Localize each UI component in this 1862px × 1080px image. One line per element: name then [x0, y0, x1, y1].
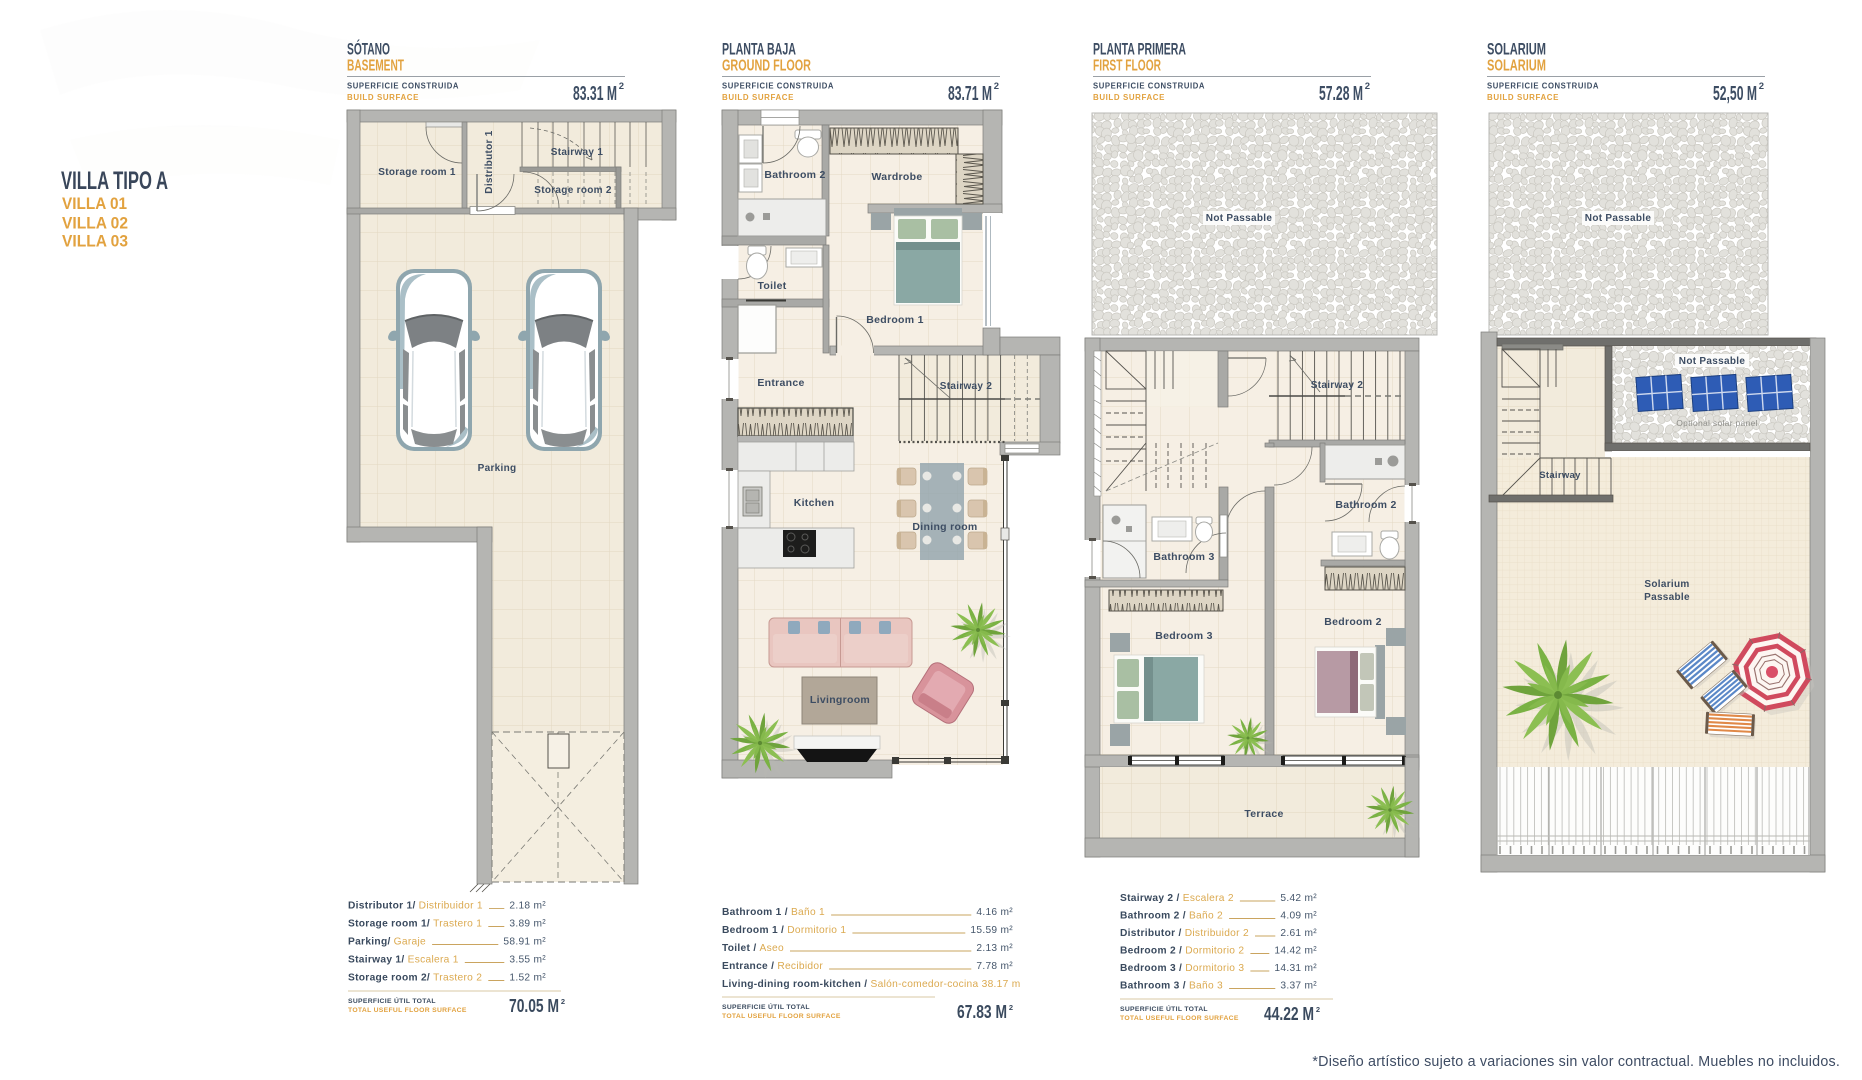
- svg-text:Storage room 2/: Storage room 2/: [348, 973, 430, 984]
- svg-text:Entrance: Entrance: [757, 377, 804, 389]
- svg-text:BUILD SURFACE: BUILD SURFACE: [1487, 93, 1559, 102]
- svg-text:SUPERFICIE CONSTRUIDA: SUPERFICIE CONSTRUIDA: [1093, 82, 1205, 91]
- svg-text:Bathroom 1 /: Bathroom 1 /: [722, 907, 788, 918]
- svg-text:15.59 m²: 15.59 m²: [970, 925, 1013, 936]
- svg-text:2: 2: [1009, 1003, 1013, 1012]
- svg-text:67.83 M: 67.83 M: [957, 1002, 1007, 1022]
- svg-text:Bedroom 2: Bedroom 2: [1324, 616, 1382, 628]
- svg-text:Storage room 1: Storage room 1: [378, 167, 456, 178]
- svg-text:BUILD SURFACE: BUILD SURFACE: [722, 93, 794, 102]
- svg-text:Escalera 2: Escalera 2: [1183, 893, 1234, 904]
- svg-text:Bedroom 3 /: Bedroom 3 /: [1120, 963, 1182, 974]
- svg-text:SUPERFICIE CONSTRUIDA: SUPERFICIE CONSTRUIDA: [347, 82, 459, 91]
- svg-text:58.91 m²: 58.91 m²: [503, 937, 546, 948]
- svg-text:Bedroom 1: Bedroom 1: [866, 314, 924, 326]
- svg-text:SÓTANO: SÓTANO: [347, 40, 390, 59]
- svg-text:Parking/: Parking/: [348, 937, 391, 948]
- svg-text:Solarium: Solarium: [1644, 579, 1689, 590]
- svg-text:Stairway: Stairway: [1539, 470, 1581, 481]
- svg-text:Bedroom 3: Bedroom 3: [1155, 630, 1213, 642]
- svg-text:Garaje: Garaje: [394, 937, 426, 948]
- svg-text:Baño 2: Baño 2: [1189, 911, 1223, 922]
- svg-text:Baño 1: Baño 1: [791, 907, 825, 918]
- svg-text:PLANTA PRIMERA: PLANTA PRIMERA: [1093, 40, 1186, 59]
- svg-text:Wardrobe: Wardrobe: [871, 171, 922, 183]
- svg-text:3.55 m²: 3.55 m²: [509, 955, 546, 966]
- svg-text:SUPERFICIE CONSTRUIDA: SUPERFICIE CONSTRUIDA: [1487, 82, 1599, 91]
- svg-text:VILLA 03: VILLA 03: [62, 233, 128, 251]
- svg-text:VILLA 02: VILLA 02: [62, 215, 128, 233]
- svg-text:SOLARIUM: SOLARIUM: [1487, 58, 1546, 75]
- svg-text:2.61 m²: 2.61 m²: [1280, 928, 1317, 939]
- svg-text:Optional solar panel: Optional solar panel: [1676, 418, 1758, 428]
- svg-text:Toilet /: Toilet /: [722, 943, 756, 954]
- svg-text:Trastero 1: Trastero 1: [433, 919, 482, 930]
- svg-text:Bathroom 2: Bathroom 2: [764, 169, 825, 181]
- svg-text:Not Passable: Not Passable: [1206, 213, 1273, 224]
- svg-text:Dormitorio 1: Dormitorio 1: [787, 925, 846, 936]
- svg-text:Passable: Passable: [1644, 592, 1690, 603]
- svg-text:TOTAL USEFUL FLOOR SURFACE: TOTAL USEFUL FLOOR SURFACE: [1120, 1015, 1239, 1022]
- svg-text:BASEMENT: BASEMENT: [347, 58, 404, 75]
- svg-text:Distributor 1: Distributor 1: [484, 130, 495, 193]
- svg-text:Storage room 1/: Storage room 1/: [348, 919, 430, 930]
- svg-text:Bedroom 1 /: Bedroom 1 /: [722, 925, 784, 936]
- svg-text:4.09 m²: 4.09 m²: [1280, 911, 1317, 922]
- svg-text:SUPERFICIE ÚTIL TOTAL: SUPERFICIE ÚTIL TOTAL: [722, 1002, 810, 1011]
- svg-text:52,50 M: 52,50 M: [1713, 82, 1757, 105]
- svg-text:BUILD SURFACE: BUILD SURFACE: [347, 93, 419, 102]
- svg-text:2.18 m²: 2.18 m²: [509, 901, 546, 912]
- svg-text:44.22 M: 44.22 M: [1264, 1004, 1314, 1024]
- svg-text:Stairway 1: Stairway 1: [551, 147, 604, 158]
- svg-text:2: 2: [1316, 1005, 1320, 1014]
- svg-text:Distribuidor 2: Distribuidor 2: [1185, 928, 1249, 939]
- svg-text:1.52 m²: 1.52 m²: [509, 973, 546, 984]
- svg-text:Living-dining room-kitchen /: Living-dining room-kitchen /: [722, 979, 867, 990]
- svg-text:57.28 M: 57.28 M: [1319, 82, 1363, 105]
- svg-text:VILLA 01: VILLA 01: [62, 195, 127, 213]
- svg-text:2: 2: [1365, 81, 1370, 92]
- svg-text:VILLA TIPO A: VILLA TIPO A: [61, 167, 168, 195]
- svg-text:4.16 m²: 4.16 m²: [976, 907, 1013, 918]
- svg-text:Storage room 2: Storage room 2: [534, 185, 612, 196]
- svg-text:Escalera 1: Escalera 1: [408, 955, 459, 966]
- svg-text:SOLARIUM: SOLARIUM: [1487, 40, 1546, 59]
- svg-text:Aseo: Aseo: [760, 943, 784, 954]
- svg-text:FIRST FLOOR: FIRST FLOOR: [1093, 58, 1161, 75]
- svg-text:Not Passable: Not Passable: [1679, 356, 1746, 367]
- svg-text:Dormitorio 3: Dormitorio 3: [1185, 963, 1244, 974]
- svg-text:Livingroom: Livingroom: [810, 694, 870, 706]
- svg-text:TOTAL USEFUL FLOOR SURFACE: TOTAL USEFUL FLOOR SURFACE: [348, 1007, 467, 1014]
- svg-text:83.71 M: 83.71 M: [948, 82, 992, 105]
- svg-text:Bathroom 2: Bathroom 2: [1335, 499, 1396, 511]
- svg-text:70.05 M: 70.05 M: [509, 996, 559, 1016]
- svg-text:SUPERFICIE ÚTIL TOTAL: SUPERFICIE ÚTIL TOTAL: [1120, 1004, 1208, 1013]
- svg-text:Bathroom 3 /: Bathroom 3 /: [1120, 981, 1186, 992]
- svg-text:5.42 m²: 5.42 m²: [1280, 893, 1317, 904]
- svg-text:Stairway 2: Stairway 2: [1311, 380, 1364, 391]
- svg-text:Stairway 2: Stairway 2: [940, 381, 993, 392]
- svg-text:Recibidor: Recibidor: [777, 961, 823, 972]
- svg-text:2.13 m²: 2.13 m²: [976, 943, 1013, 954]
- svg-text:Stairway 2 /: Stairway 2 /: [1120, 893, 1180, 904]
- svg-text:Dining room: Dining room: [912, 521, 977, 533]
- svg-text:SUPERFICIE CONSTRUIDA: SUPERFICIE CONSTRUIDA: [722, 82, 834, 91]
- svg-text:PLANTA BAJA: PLANTA BAJA: [722, 40, 796, 59]
- svg-text:3.89 m²: 3.89 m²: [509, 919, 546, 930]
- svg-text:Not Passable: Not Passable: [1585, 213, 1652, 224]
- svg-text:Trastero 2: Trastero 2: [433, 973, 482, 984]
- svg-text:14.31 m²: 14.31 m²: [1274, 963, 1317, 974]
- svg-text:7.78 m²: 7.78 m²: [976, 961, 1013, 972]
- svg-text:2: 2: [619, 81, 624, 92]
- svg-text:3.37 m²: 3.37 m²: [1280, 981, 1317, 992]
- svg-text:Parking: Parking: [478, 463, 517, 474]
- svg-text:Kitchen: Kitchen: [794, 497, 835, 509]
- svg-text:Toilet: Toilet: [757, 280, 786, 292]
- svg-text:Distribuidor 1: Distribuidor 1: [419, 901, 483, 912]
- svg-text:Terrace: Terrace: [1244, 808, 1283, 820]
- svg-text:TOTAL USEFUL FLOOR SURFACE: TOTAL USEFUL FLOOR SURFACE: [722, 1013, 841, 1020]
- svg-text:14.42 m²: 14.42 m²: [1274, 946, 1317, 957]
- svg-text:GROUND FLOOR: GROUND FLOOR: [722, 58, 811, 75]
- svg-text:Bedroom 2 /: Bedroom 2 /: [1120, 946, 1182, 957]
- svg-text:2: 2: [1759, 81, 1764, 92]
- svg-text:SUPERFICIE ÚTIL TOTAL: SUPERFICIE ÚTIL TOTAL: [348, 996, 436, 1005]
- svg-text:Dormitorio 2: Dormitorio 2: [1185, 946, 1244, 957]
- svg-text:Salón-comedor-cocina 38.17 m: Salón-comedor-cocina 38.17 m: [871, 979, 1021, 990]
- svg-text:2: 2: [994, 81, 999, 92]
- svg-text:Distributor 1/: Distributor 1/: [348, 901, 416, 912]
- svg-text:Baño 3: Baño 3: [1189, 981, 1223, 992]
- svg-text:Entrance /: Entrance /: [722, 961, 774, 972]
- svg-text:83.31 M: 83.31 M: [573, 82, 617, 105]
- svg-text:BUILD SURFACE: BUILD SURFACE: [1093, 93, 1165, 102]
- svg-text:Bathroom 2 /: Bathroom 2 /: [1120, 911, 1186, 922]
- svg-text:Bathroom 3: Bathroom 3: [1153, 551, 1214, 563]
- svg-text:Stairway 1/: Stairway 1/: [348, 955, 405, 966]
- svg-text:Distributor /: Distributor /: [1120, 928, 1182, 939]
- svg-text:*Diseño artístico sujeto a var: *Diseño artístico sujeto a variaciones s…: [1312, 1054, 1840, 1070]
- svg-text:2: 2: [561, 997, 565, 1006]
